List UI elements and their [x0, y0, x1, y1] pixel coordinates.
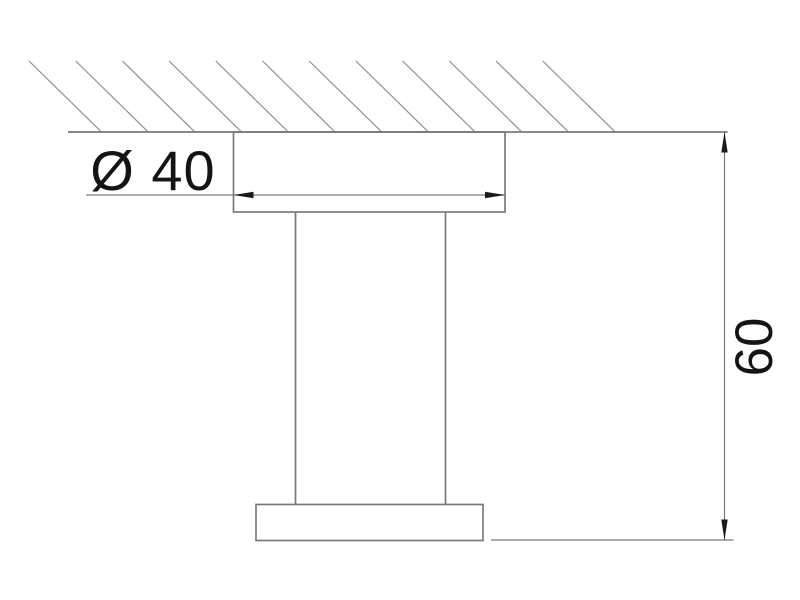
arrowhead-up-icon: [721, 132, 727, 153]
diameter-dimension: Ø 40: [86, 139, 505, 202]
arrowhead-right-icon: [485, 192, 505, 198]
hatch-line: [449, 61, 522, 132]
hatch-line: [29, 61, 102, 132]
hatch-pattern: [29, 61, 615, 132]
height-dimension-label: 60: [725, 318, 784, 377]
part-outline: [234, 132, 506, 541]
arrowhead-left-icon: [234, 192, 254, 198]
technical-drawing: Ø 40 60: [0, 0, 800, 600]
hatch-line: [263, 61, 336, 132]
base-outline: [256, 505, 483, 541]
diameter-dimension-label: Ø 40: [90, 139, 215, 202]
hatch-line: [309, 61, 382, 132]
height-dimension: 60: [491, 132, 784, 540]
drawing-canvas: Ø 40 60: [0, 0, 800, 600]
flange-outline: [234, 132, 506, 212]
arrowhead-down-icon: [721, 520, 727, 541]
hatch-line: [169, 61, 242, 132]
hatch-line: [543, 61, 616, 132]
hatch-line: [76, 61, 149, 132]
hatch-line: [403, 61, 476, 132]
hatch-line: [216, 61, 288, 132]
hatch-line: [496, 61, 569, 132]
hatch-line: [122, 61, 194, 132]
hatch-line: [356, 61, 429, 132]
